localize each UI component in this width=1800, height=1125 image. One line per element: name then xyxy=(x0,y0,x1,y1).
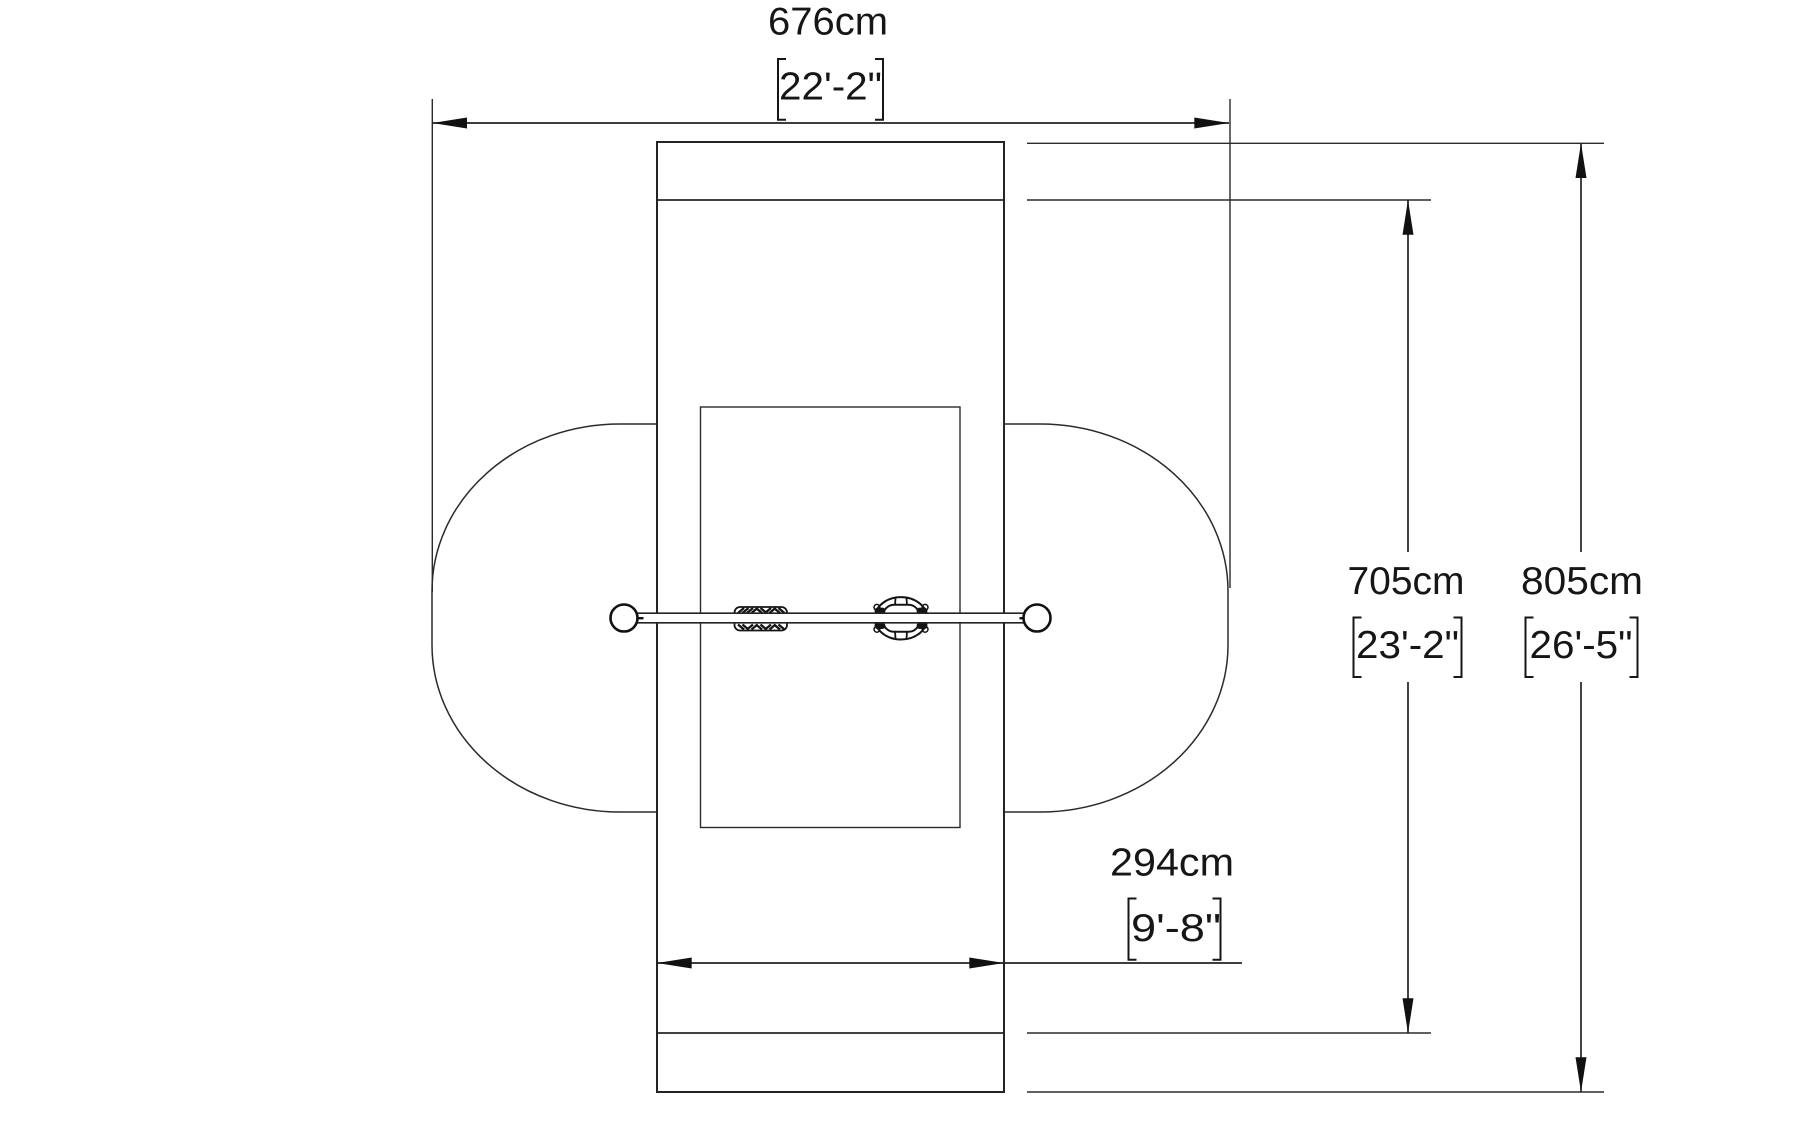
svg-text:676cm: 676cm xyxy=(768,1,888,44)
svg-text:22'-2": 22'-2" xyxy=(779,66,882,109)
svg-text:705cm: 705cm xyxy=(1348,560,1465,603)
svg-text:294cm: 294cm xyxy=(1110,842,1234,885)
svg-text:23'-2": 23'-2" xyxy=(1356,624,1459,667)
svg-text:805cm: 805cm xyxy=(1521,560,1643,603)
svg-text:9'-8": 9'-8" xyxy=(1131,907,1221,950)
svg-text:26'-5": 26'-5" xyxy=(1530,624,1633,667)
